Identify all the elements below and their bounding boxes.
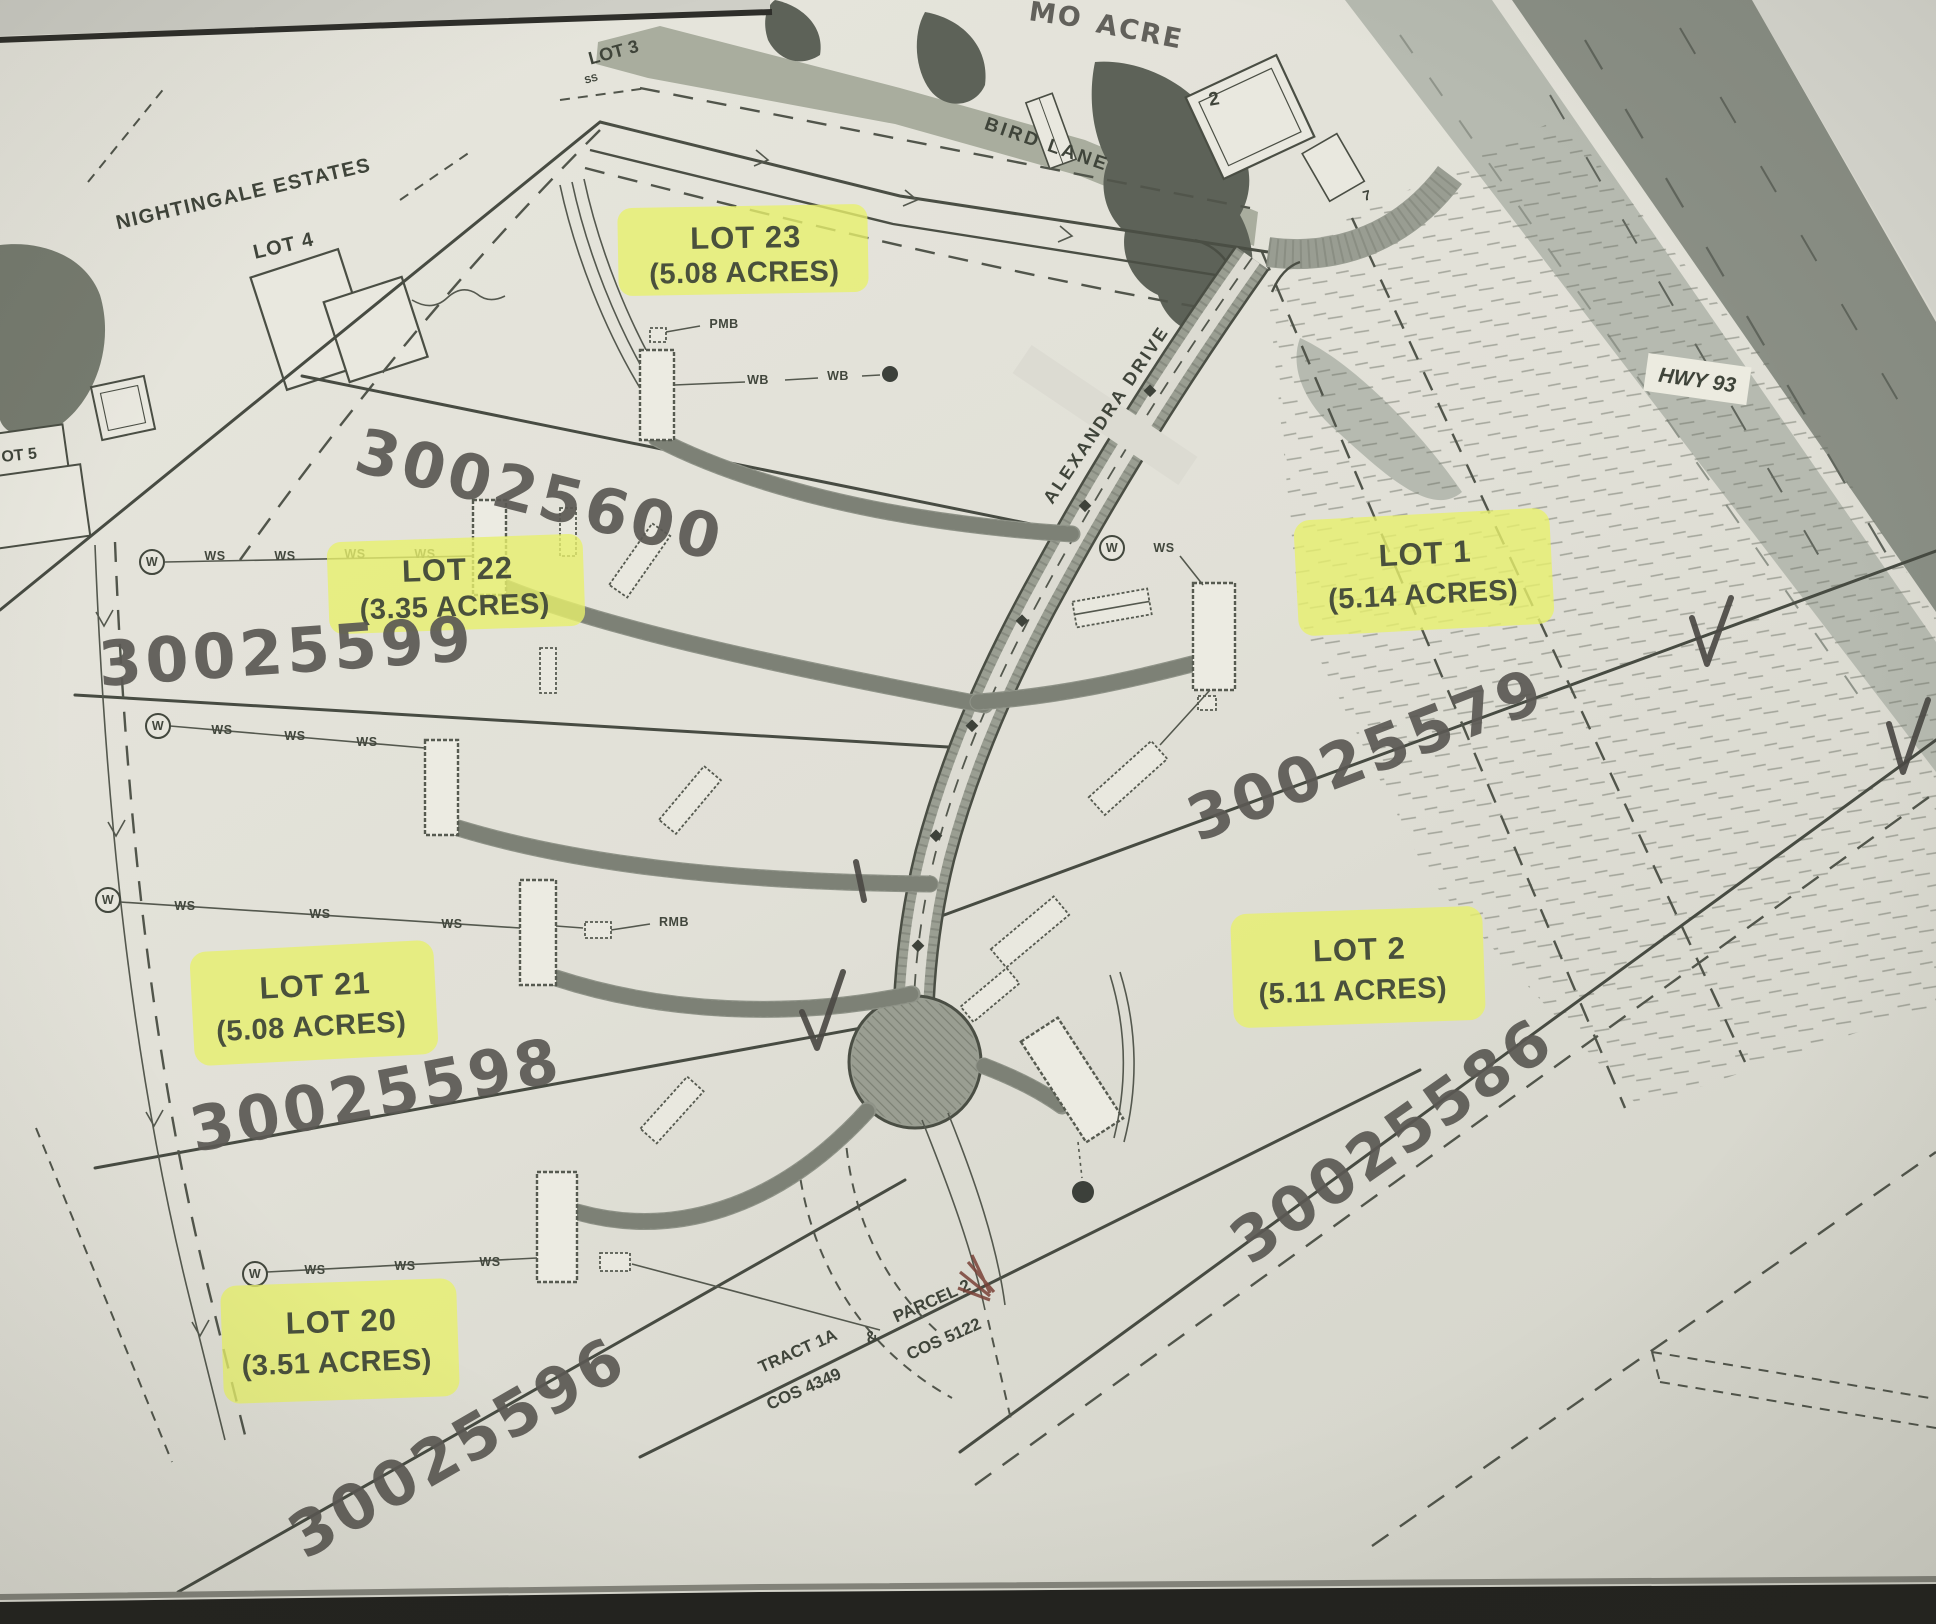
plat-map-photo: W W W W W WS WS WS WS WS WS WS WS WS WS … [0, 0, 1936, 1624]
photo-artifacts [0, 0, 1936, 1624]
